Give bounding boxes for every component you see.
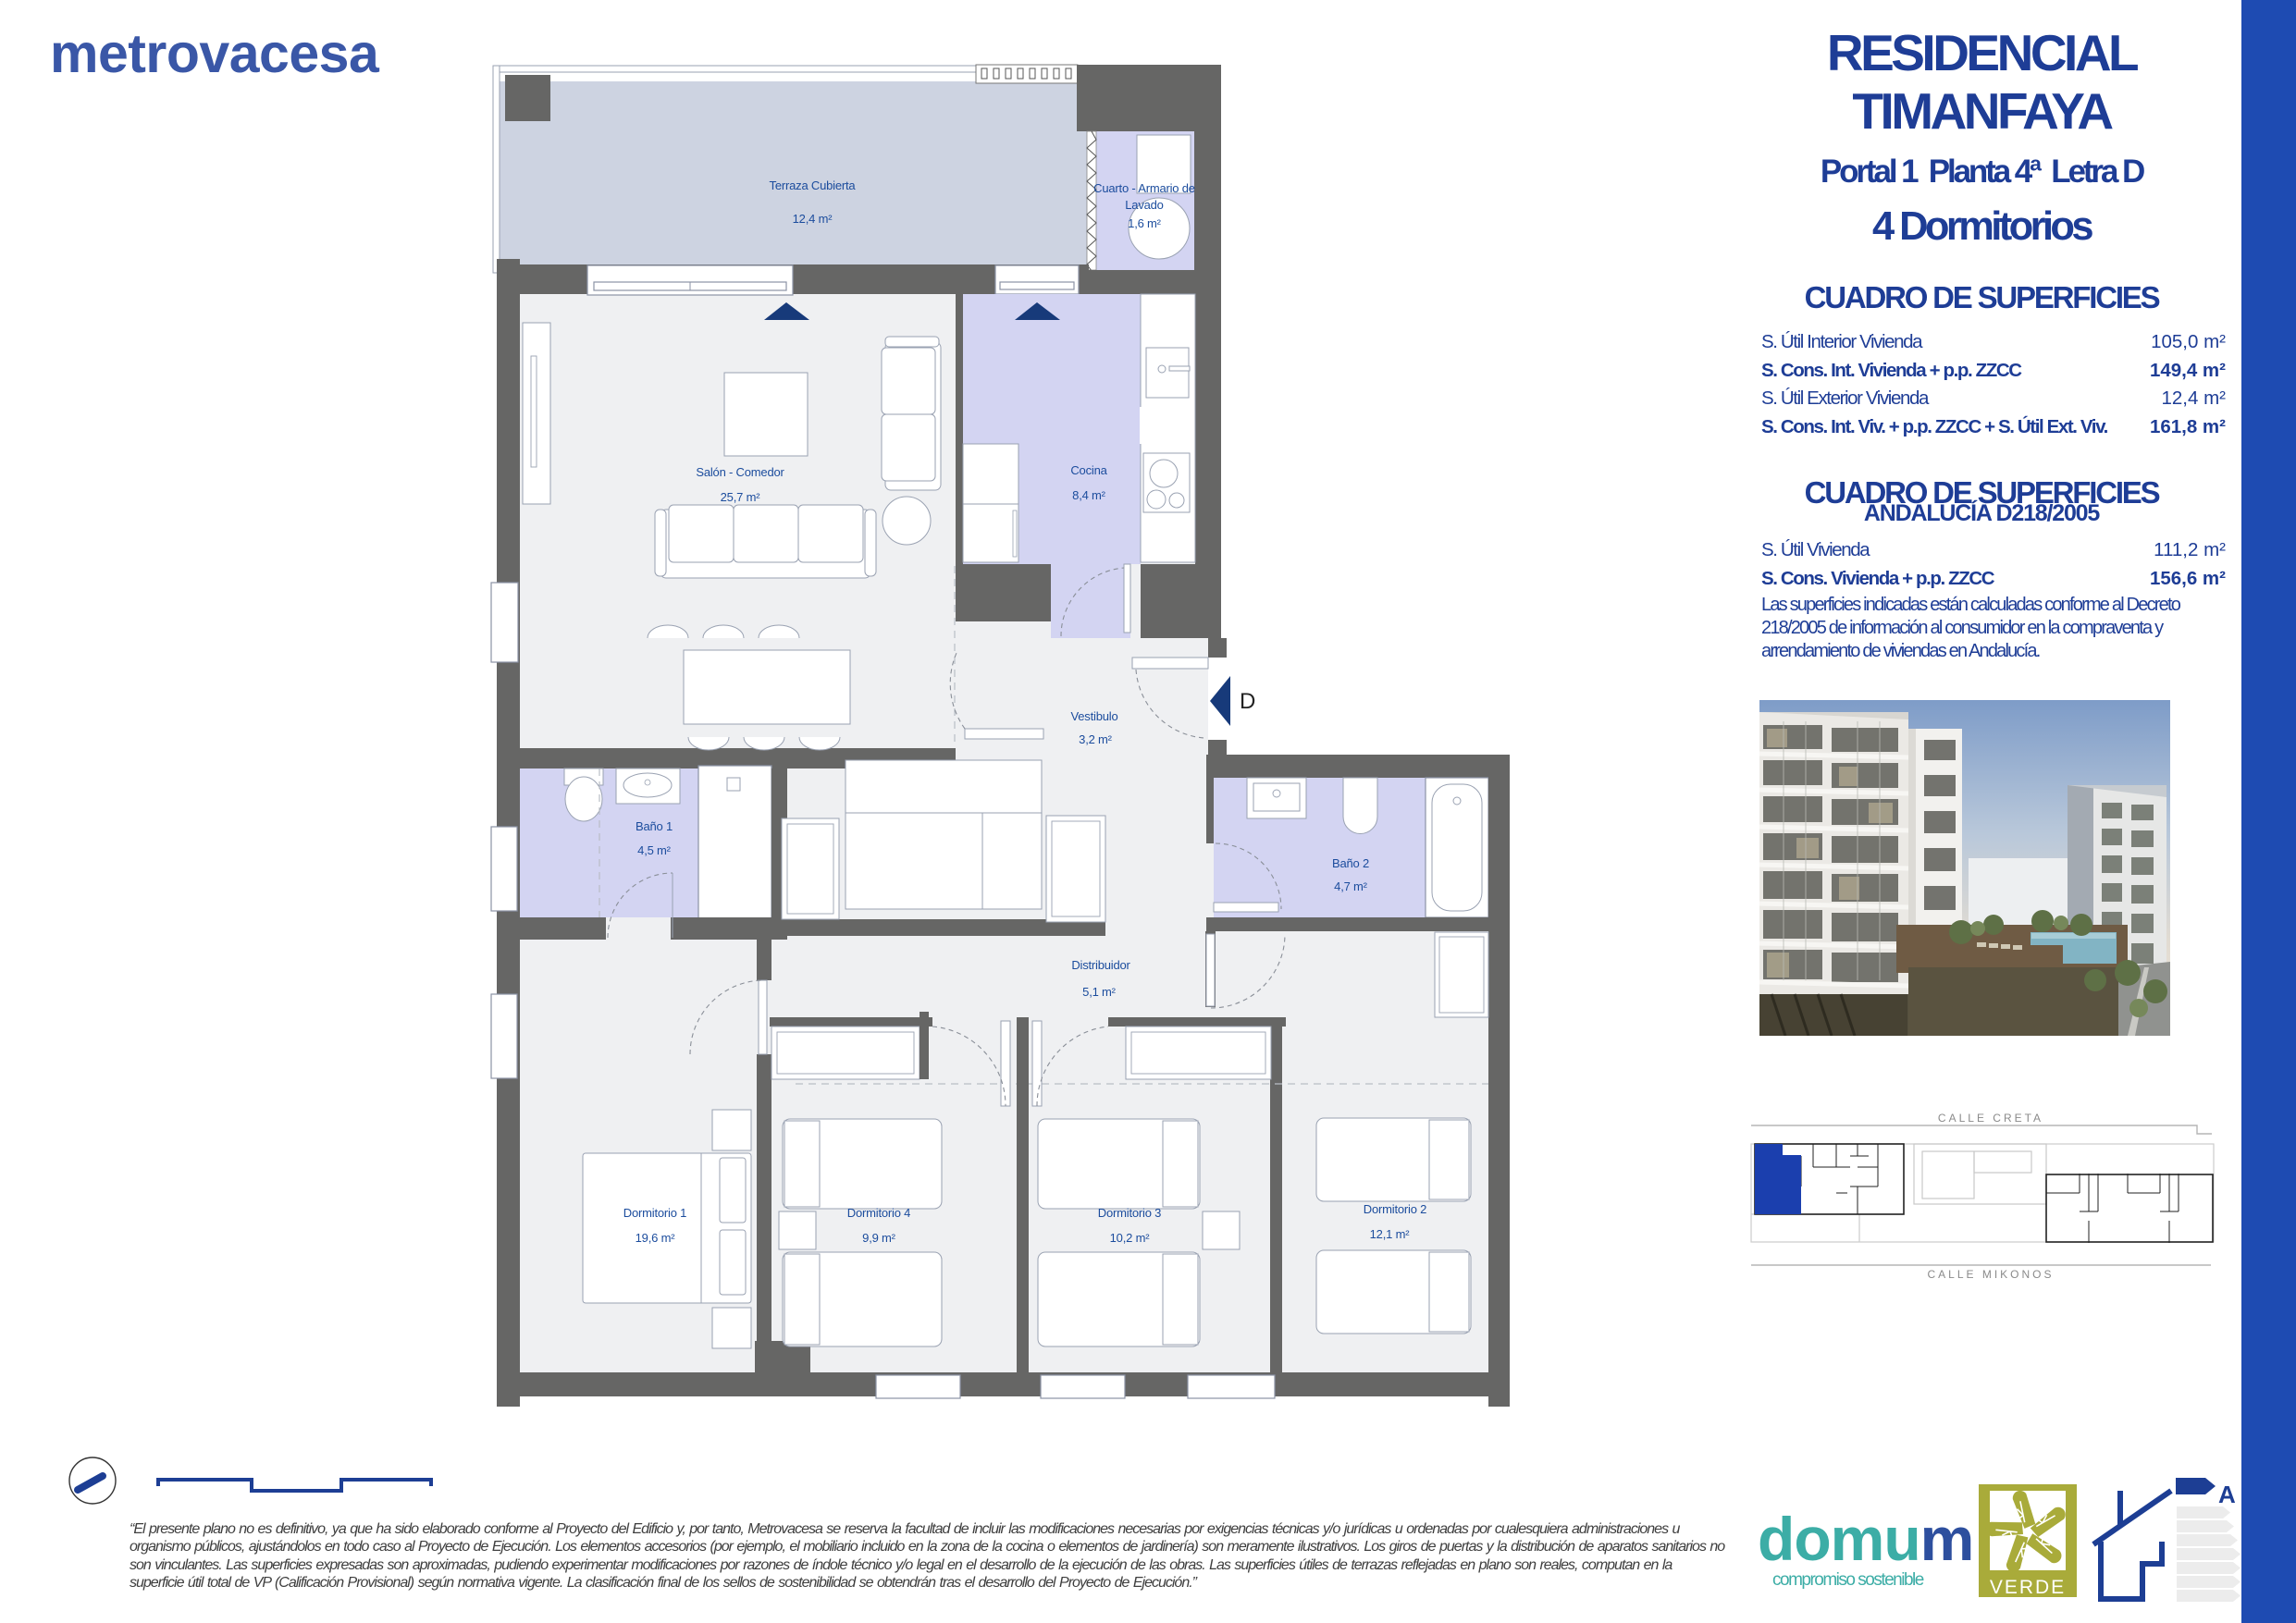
svg-text:12,1 m²: 12,1 m² <box>1370 1227 1411 1241</box>
svg-text:Cuarto - Armario de: Cuarto - Armario de <box>1093 181 1195 195</box>
svg-text:19,6 m²: 19,6 m² <box>636 1231 676 1245</box>
svg-text:A: A <box>2218 1481 2236 1508</box>
svg-text:Dormitorio 4: Dormitorio 4 <box>847 1206 910 1220</box>
svg-text:5,1 m²: 5,1 m² <box>1082 985 1117 999</box>
svg-text:Baño 2: Baño 2 <box>1332 856 1369 870</box>
svg-text:1,6 m²: 1,6 m² <box>1128 216 1162 230</box>
svg-text:D: D <box>1240 689 1255 714</box>
svg-text:10,2 m²: 10,2 m² <box>1110 1231 1151 1245</box>
svg-text:25,7 m²: 25,7 m² <box>721 490 761 504</box>
svg-text:Dormitorio 1: Dormitorio 1 <box>623 1206 686 1220</box>
svg-text:Baño 1: Baño 1 <box>636 819 673 833</box>
svg-text:Terraza Cubierta: Terraza Cubierta <box>770 178 857 192</box>
svg-text:12,4 m²: 12,4 m² <box>793 212 833 226</box>
svg-text:CALLE CRETA: CALLE CRETA <box>1938 1112 2043 1125</box>
svg-text:4,7 m²: 4,7 m² <box>1334 879 1368 893</box>
svg-text:Lavado: Lavado <box>1125 198 1163 212</box>
svg-text:CALLE MIKONOS: CALLE MIKONOS <box>1927 1268 2054 1281</box>
svg-text:Cocina: Cocina <box>1070 463 1107 477</box>
svg-text:Dormitorio 2: Dormitorio 2 <box>1364 1202 1426 1216</box>
svg-text:Dormitorio 3: Dormitorio 3 <box>1098 1206 1161 1220</box>
svg-text:3,2 m²: 3,2 m² <box>1079 732 1113 746</box>
svg-text:Vestibulo: Vestibulo <box>1071 709 1118 723</box>
svg-text:4,5 m²: 4,5 m² <box>637 843 672 857</box>
svg-text:Distribuidor: Distribuidor <box>1071 958 1130 972</box>
svg-text:9,9 m²: 9,9 m² <box>862 1231 896 1245</box>
svg-text:VERDE: VERDE <box>1990 1577 2066 1598</box>
svg-text:Salón - Comedor: Salón - Comedor <box>696 465 784 479</box>
svg-text:8,4 m²: 8,4 m² <box>1072 488 1106 502</box>
